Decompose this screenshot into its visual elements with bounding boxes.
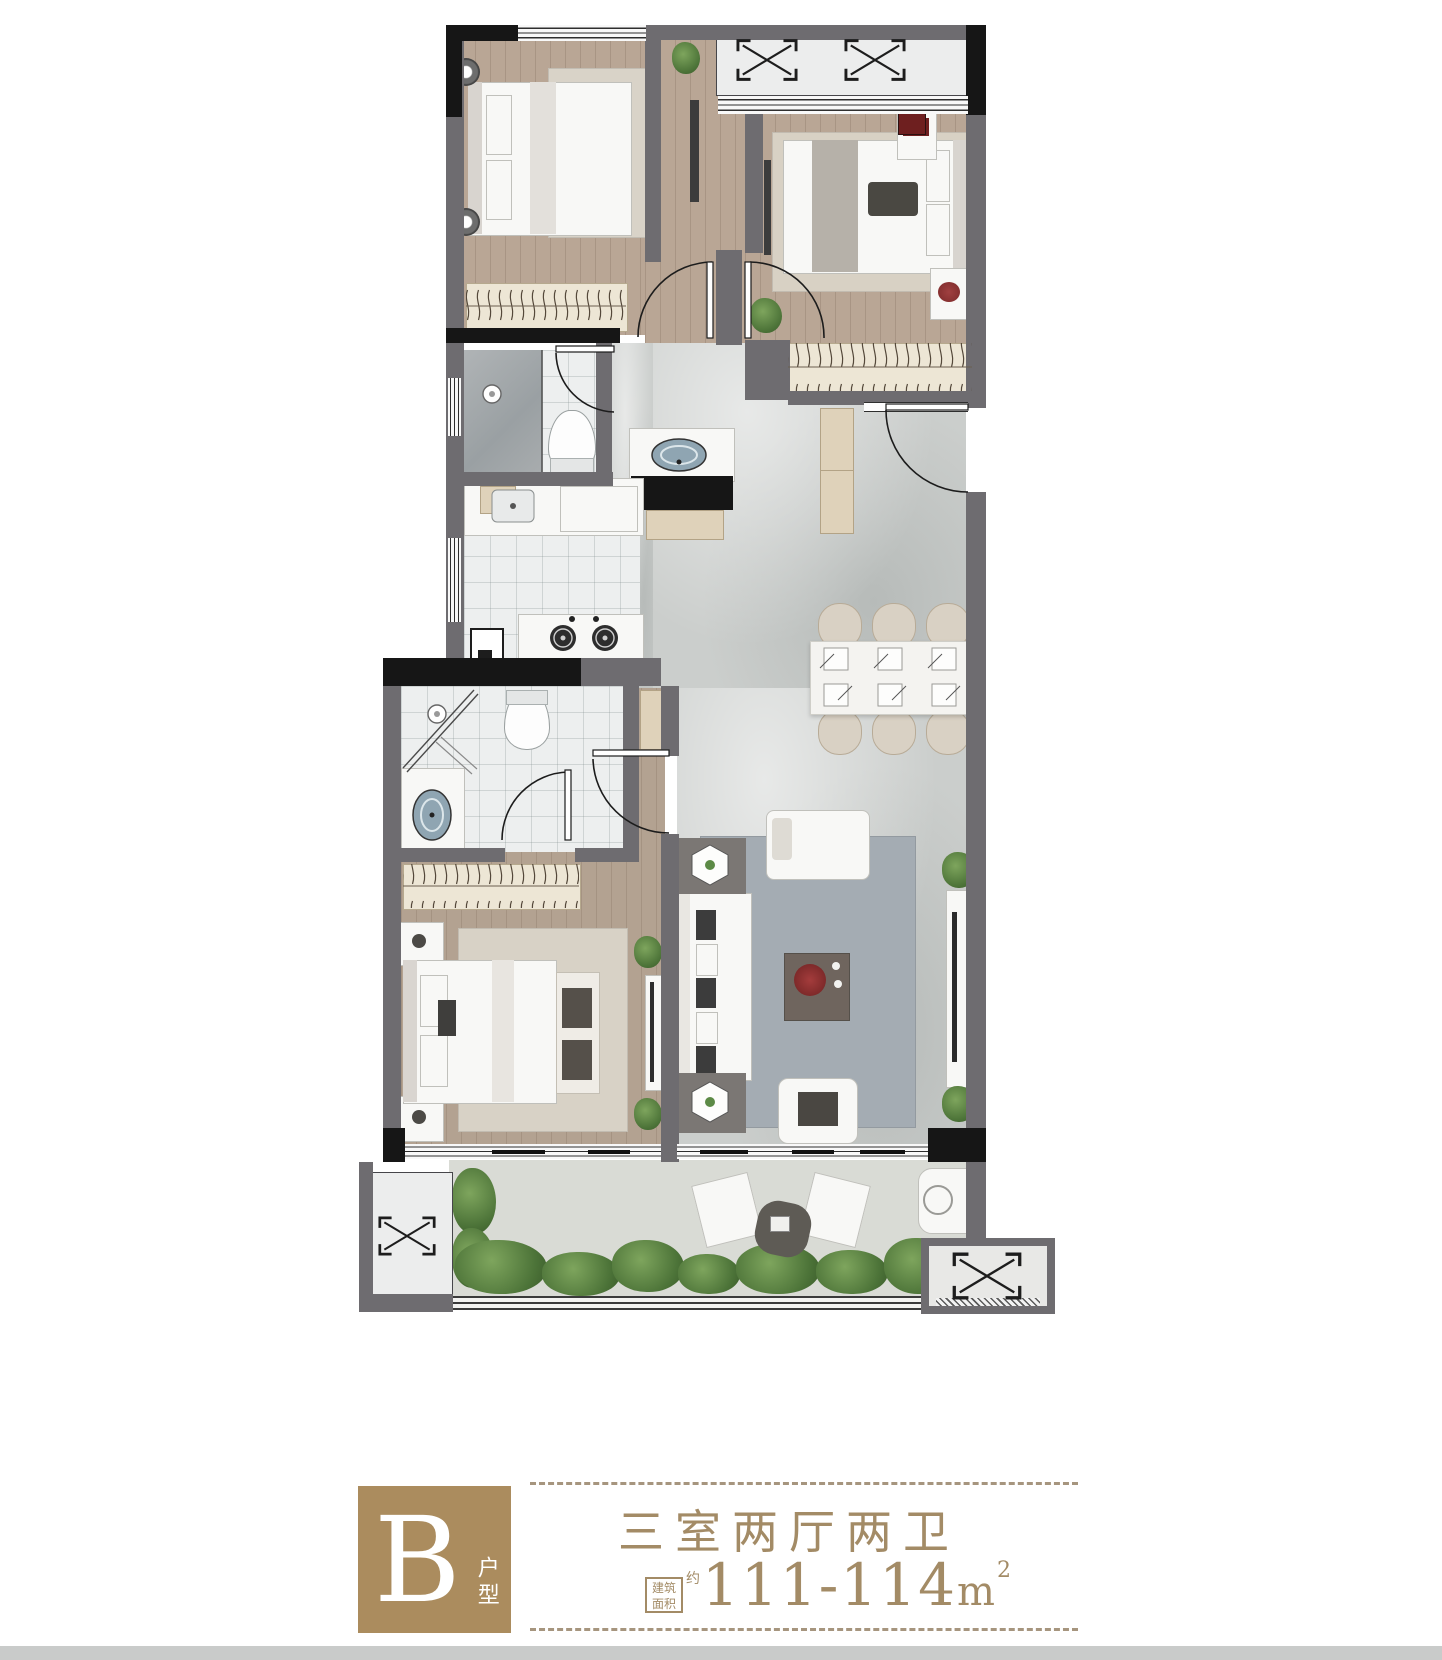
area-label-box: 建筑 面积 <box>645 1577 683 1613</box>
area-unit: m <box>957 1569 997 1615</box>
unit-suffix-label: 户型 <box>471 1556 503 1610</box>
photo-edge-strip <box>0 1646 1442 1660</box>
area-approx-label: 约 <box>686 1568 700 1588</box>
area-label-line2: 面积 <box>647 1596 681 1612</box>
wardrobe-hanger-icons <box>403 283 972 908</box>
area-unit-superscript: 2 <box>997 1558 1013 1583</box>
washer-door-icon <box>924 1186 952 1214</box>
dashed-divider-bottom <box>530 1628 1078 1631</box>
plan-annotations <box>0 0 1442 1660</box>
area-range: 111-114 <box>702 1551 957 1619</box>
shower-fixture-icons <box>403 350 542 774</box>
stove-burner-icons <box>550 616 618 651</box>
area-value: 111-114m2 <box>702 1556 1013 1614</box>
floor-plan-page: B 户型 三室两厅两卫 建筑 面积 约 111-114m2 <box>0 0 1442 1660</box>
dashed-divider-top <box>530 1482 1078 1485</box>
place-setting-icons <box>820 648 960 706</box>
unit-badge: B 户型 <box>358 1486 511 1633</box>
area-label-line1: 建筑 <box>647 1580 681 1596</box>
unit-letter: B <box>374 1501 461 1619</box>
hexagon-decor-icons <box>692 845 728 1122</box>
